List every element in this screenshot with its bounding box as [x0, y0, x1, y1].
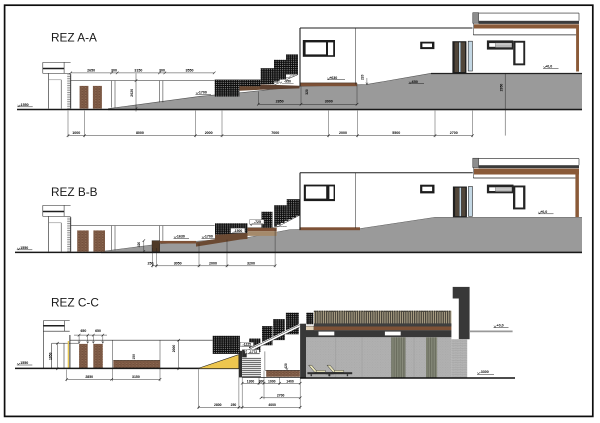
svg-text:1000: 1000: [72, 131, 80, 135]
svg-text:300: 300: [111, 69, 117, 73]
svg-text:+630: +630: [329, 76, 337, 80]
svg-text:-1550: -1550: [19, 246, 28, 250]
svg-text:150: 150: [132, 354, 136, 360]
svg-text:2000: 2000: [339, 131, 347, 135]
svg-text:2000: 2000: [172, 345, 176, 353]
svg-text:7000: 7000: [271, 131, 279, 135]
svg-text:2000: 2000: [205, 131, 213, 135]
svg-text:2850: 2850: [276, 100, 284, 104]
svg-text:1300: 1300: [247, 379, 255, 383]
svg-text:-725: -725: [254, 220, 261, 224]
svg-text:650: 650: [80, 329, 86, 333]
svg-text:-1700: -1700: [204, 235, 213, 239]
svg-text:2700: 2700: [277, 393, 285, 397]
svg-text:2020: 2020: [130, 89, 134, 97]
svg-text:1650: 1650: [49, 352, 53, 360]
svg-text:3050: 3050: [174, 261, 182, 265]
svg-text:-1700: -1700: [198, 91, 207, 95]
svg-text:1000: 1000: [268, 379, 276, 383]
svg-text:4000: 4000: [268, 403, 276, 407]
svg-text:+0,0: +0,0: [540, 210, 547, 214]
svg-text:2650: 2650: [87, 69, 95, 73]
svg-text:8000: 8000: [136, 131, 144, 135]
svg-text:-1550: -1550: [19, 361, 28, 365]
svg-text:REZ B-B: REZ B-B: [51, 185, 98, 199]
svg-text:-650: -650: [411, 80, 418, 84]
svg-text:5500: 5500: [392, 131, 400, 135]
svg-text:3550: 3550: [186, 69, 194, 73]
svg-text:3150: 3150: [132, 375, 140, 379]
svg-text:REZ A-A: REZ A-A: [51, 31, 97, 45]
svg-text:650: 650: [95, 329, 101, 333]
svg-text:2950: 2950: [499, 84, 503, 92]
svg-text:2850: 2850: [85, 375, 93, 379]
svg-text:+0,0: +0,0: [497, 324, 504, 328]
svg-text:420: 420: [137, 242, 141, 248]
svg-text:-1500: -1500: [234, 229, 243, 233]
svg-text:2700: 2700: [450, 131, 458, 135]
svg-text:250: 250: [231, 403, 237, 407]
svg-text:-950: -950: [284, 80, 291, 84]
svg-text:-1550: -1550: [19, 103, 28, 107]
svg-text:REZ C-C: REZ C-C: [51, 296, 99, 310]
svg-text:250: 250: [148, 261, 154, 265]
svg-text:+0,0: +0,0: [545, 65, 552, 69]
svg-text:300: 300: [259, 379, 265, 383]
svg-text:2000: 2000: [209, 261, 217, 265]
svg-text:-1630: -1630: [176, 235, 185, 239]
svg-text:220: 220: [360, 74, 364, 80]
svg-text:2800: 2800: [214, 403, 222, 407]
svg-text:-3300: -3300: [480, 370, 489, 374]
svg-text:3000: 3000: [325, 100, 333, 104]
svg-text:3150: 3150: [134, 69, 142, 73]
svg-text:320: 320: [305, 89, 309, 95]
svg-text:1400: 1400: [286, 379, 294, 383]
svg-text:300: 300: [159, 69, 165, 73]
svg-text:3200: 3200: [247, 261, 255, 265]
